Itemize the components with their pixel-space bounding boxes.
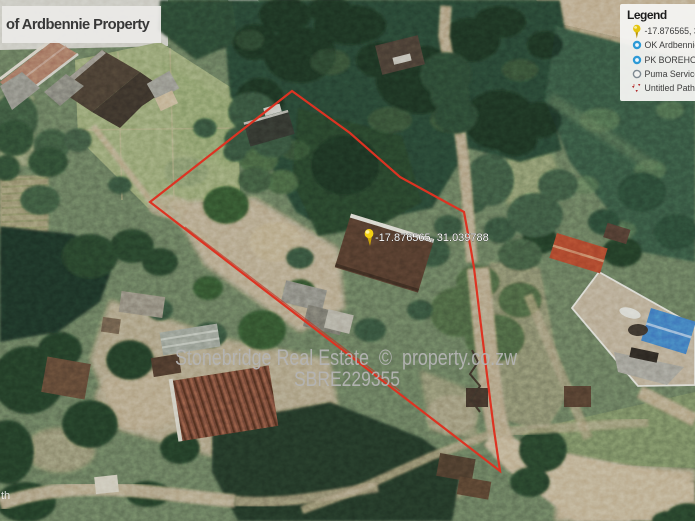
svg-text:th: th [1, 490, 10, 502]
svg-text:-17.876565, 31.039788: -17.876565, 31.039788 [375, 232, 489, 244]
svg-text:SBRE229355: SBRE229355 [294, 368, 400, 391]
svg-text:Stonebridge Real Estate © pr: Stonebridge Real Estate © property.co.zw [175, 345, 517, 370]
